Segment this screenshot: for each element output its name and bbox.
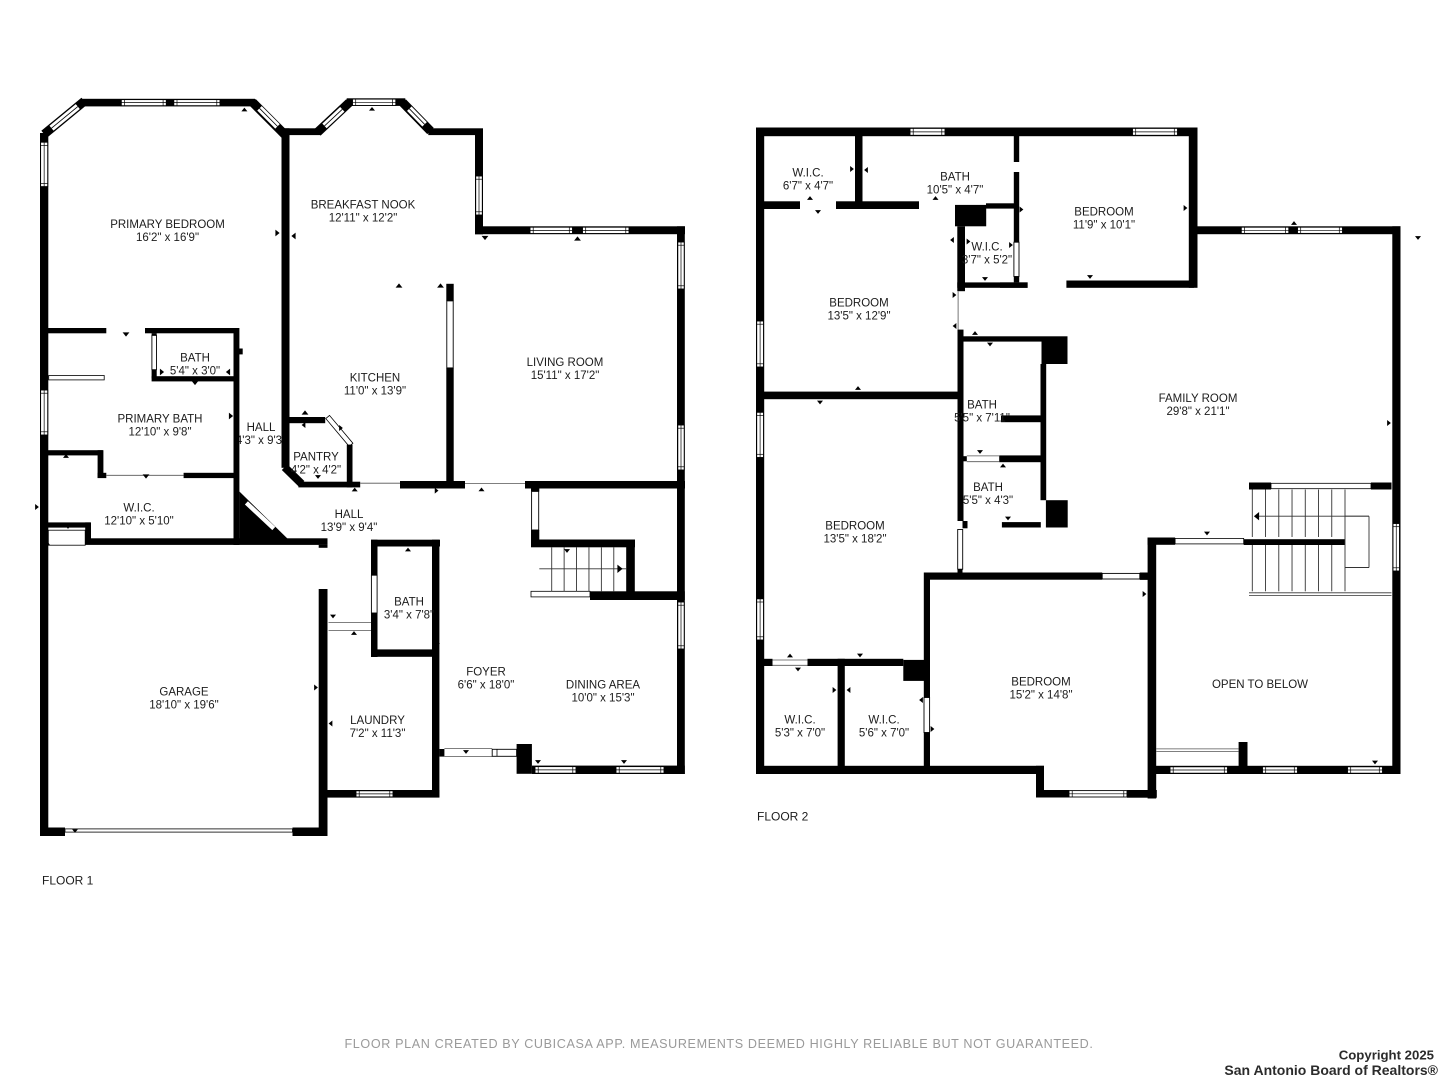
svg-text:DINING AREA: DINING AREA [566, 680, 640, 692]
svg-text:13'5" x 12'9": 13'5" x 12'9" [827, 311, 890, 323]
svg-text:18'10" x 19'6": 18'10" x 19'6" [149, 700, 218, 712]
svg-text:10'0" x 15'3": 10'0" x 15'3" [571, 693, 634, 705]
svg-text:10'5" x 4'7": 10'5" x 4'7" [927, 185, 984, 197]
svg-text:GARAGE: GARAGE [159, 687, 209, 699]
svg-text:4'3" x 9'3": 4'3" x 9'3" [236, 435, 286, 447]
svg-text:6'6" x 18'0": 6'6" x 18'0" [458, 680, 515, 692]
svg-text:4'2" x 4'2": 4'2" x 4'2" [291, 465, 341, 477]
svg-text:FLOOR 1: FLOOR 1 [42, 874, 94, 888]
svg-text:5'5" x 4'3": 5'5" x 4'3" [963, 495, 1013, 507]
svg-text:OPEN TO BELOW: OPEN TO BELOW [1212, 679, 1308, 691]
svg-text:5'5" x 7'11": 5'5" x 7'11" [954, 413, 1010, 425]
svg-text:Copyright 2025: Copyright 2025 [1339, 1048, 1434, 1063]
svg-text:BEDROOM: BEDROOM [825, 521, 884, 533]
svg-text:12'10" x 9'8": 12'10" x 9'8" [128, 427, 191, 439]
svg-text:FLOOR PLAN CREATED BY CUBICASA: FLOOR PLAN CREATED BY CUBICASA APP. MEAS… [344, 1037, 1093, 1051]
svg-text:HALL: HALL [247, 422, 276, 434]
svg-text:6'7" x 4'7": 6'7" x 4'7" [783, 181, 833, 193]
svg-text:15'11" x 17'2": 15'11" x 17'2" [531, 370, 600, 382]
svg-text:KITCHEN: KITCHEN [350, 373, 400, 385]
svg-text:LAUNDRY: LAUNDRY [350, 715, 405, 727]
svg-text:W.I.C.: W.I.C. [123, 503, 154, 515]
svg-text:PRIMARY BEDROOM: PRIMARY BEDROOM [110, 219, 225, 231]
svg-text:FOYER: FOYER [466, 667, 506, 679]
svg-text:BATH: BATH [394, 597, 424, 609]
svg-text:BATH: BATH [180, 353, 210, 365]
svg-text:BEDROOM: BEDROOM [829, 298, 888, 310]
svg-text:BREAKFAST NOOK: BREAKFAST NOOK [311, 200, 416, 212]
svg-text:13'5" x 18'2": 13'5" x 18'2" [823, 534, 886, 546]
svg-text:W.I.C.: W.I.C. [792, 168, 823, 180]
svg-text:W.I.C.: W.I.C. [971, 242, 1002, 254]
svg-text:29'8" x 21'1": 29'8" x 21'1" [1166, 406, 1229, 418]
svg-text:11'0" x 13'9": 11'0" x 13'9" [344, 386, 406, 398]
svg-text:5'6" x 7'0": 5'6" x 7'0" [859, 728, 909, 740]
svg-text:12'10" x 5'10": 12'10" x 5'10" [104, 516, 173, 528]
svg-text:3'4" x 7'8": 3'4" x 7'8" [384, 610, 434, 622]
svg-text:PANTRY: PANTRY [293, 452, 339, 464]
svg-text:12'11" x 12'2": 12'11" x 12'2" [329, 213, 398, 225]
svg-text:W.I.C.: W.I.C. [784, 715, 815, 727]
svg-text:BATH: BATH [940, 172, 970, 184]
svg-text:BATH: BATH [973, 482, 1003, 494]
svg-text:HALL: HALL [335, 509, 364, 521]
svg-text:16'2" x 16'9": 16'2" x 16'9" [136, 232, 199, 244]
svg-text:3'7" x 5'2": 3'7" x 5'2" [962, 255, 1012, 267]
svg-text:5'3" x 7'0": 5'3" x 7'0" [775, 728, 825, 740]
svg-text:15'2" x 14'8": 15'2" x 14'8" [1009, 690, 1072, 702]
svg-text:13'9" x 9'4": 13'9" x 9'4" [321, 522, 378, 534]
svg-text:BEDROOM: BEDROOM [1074, 207, 1133, 219]
svg-text:LIVING ROOM: LIVING ROOM [527, 357, 604, 369]
svg-text:FLOOR 2: FLOOR 2 [757, 810, 809, 824]
svg-text:7'2" x 11'3": 7'2" x 11'3" [350, 728, 406, 740]
svg-text:BEDROOM: BEDROOM [1011, 677, 1070, 689]
svg-text:FAMILY ROOM: FAMILY ROOM [1159, 393, 1238, 405]
svg-text:W.I.C.: W.I.C. [868, 715, 899, 727]
svg-text:PRIMARY BATH: PRIMARY BATH [118, 414, 203, 426]
svg-text:BATH: BATH [967, 400, 997, 412]
svg-text:5'4" x 3'0": 5'4" x 3'0" [170, 366, 220, 378]
svg-text:11'9" x 10'1": 11'9" x 10'1" [1073, 220, 1135, 232]
svg-text:San Antonio Board of Realtors®: San Antonio Board of Realtors® [1224, 1062, 1438, 1078]
